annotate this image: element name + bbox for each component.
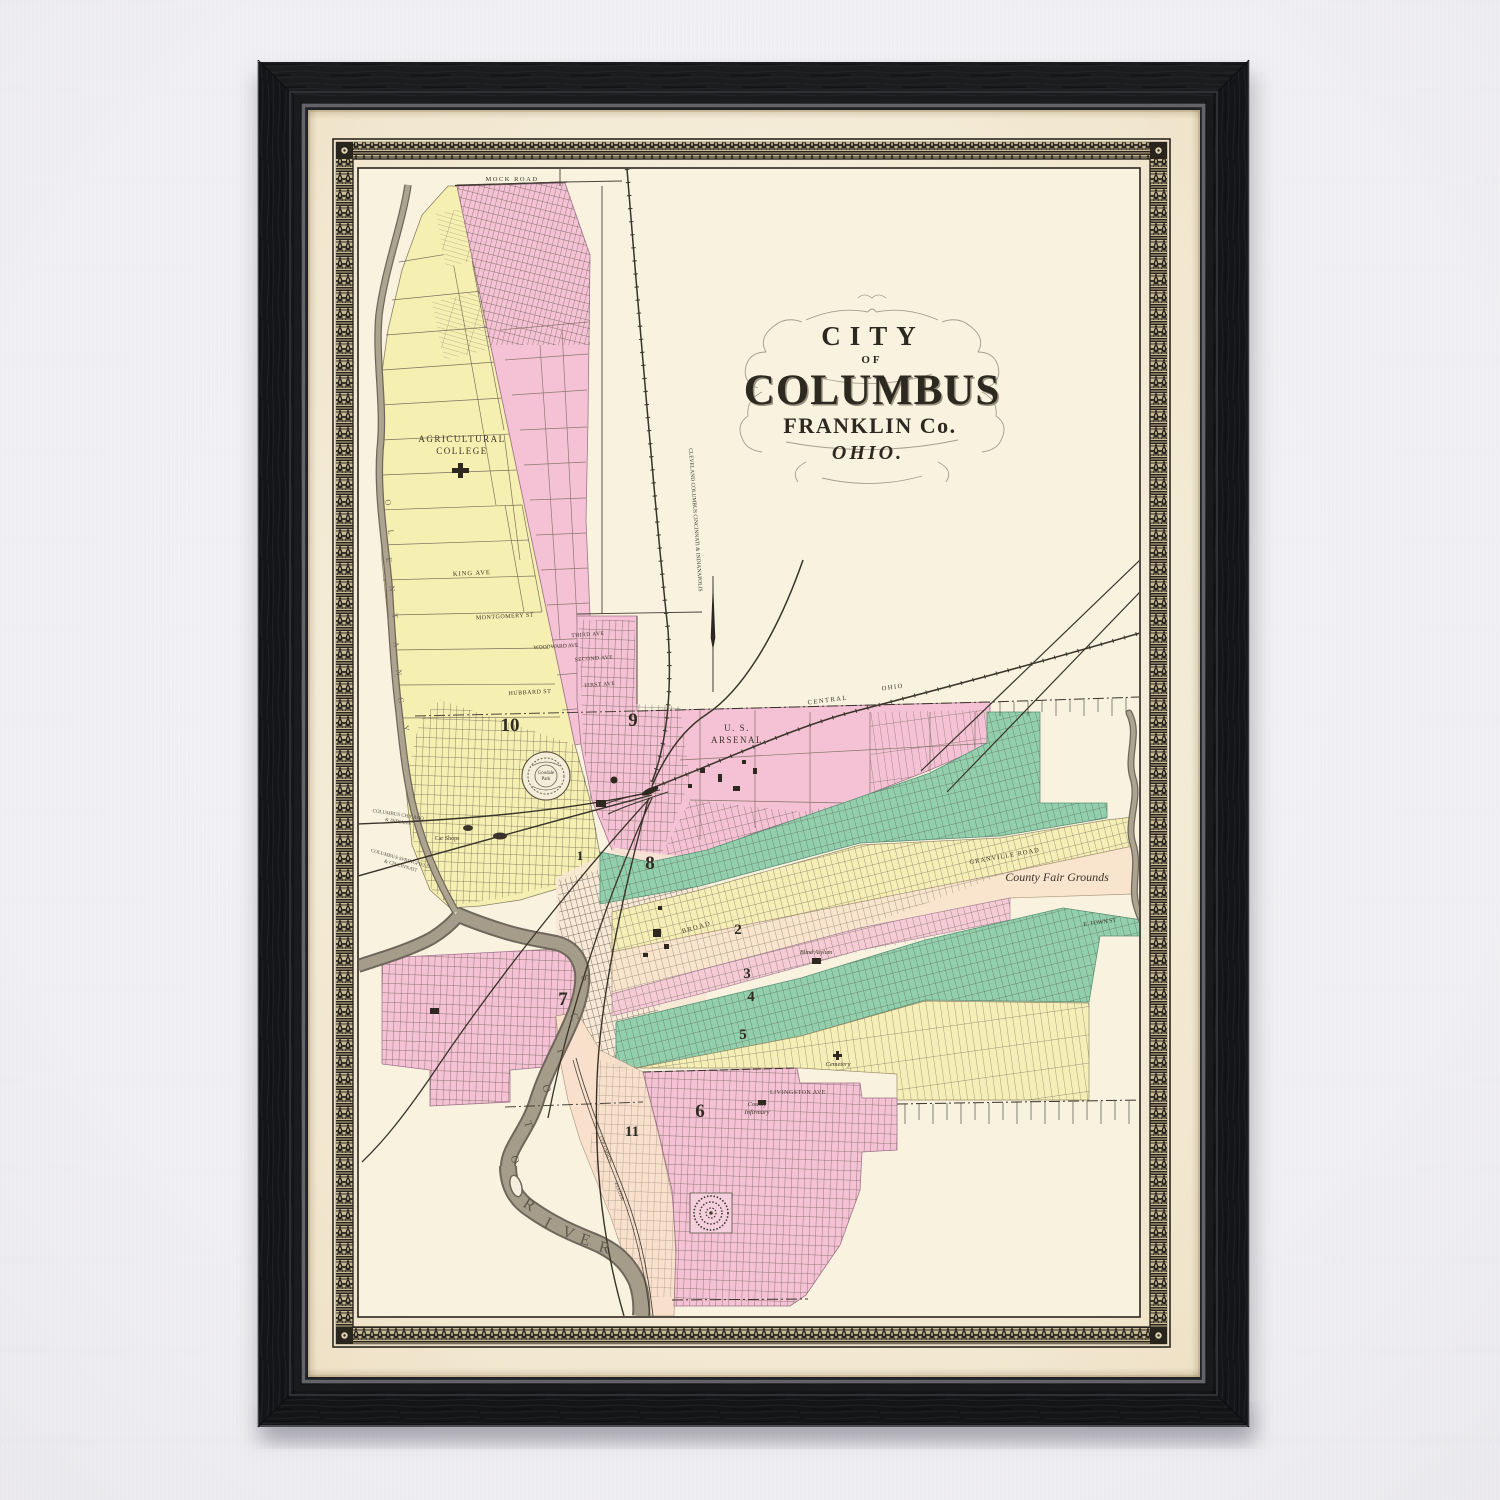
- svg-text:AGRICULTURAL: AGRICULTURAL: [418, 434, 505, 444]
- svg-text:Infirmary: Infirmary: [744, 1109, 770, 1116]
- svg-text:FRANKLIN Co.: FRANKLIN Co.: [783, 413, 956, 438]
- svg-text:8: 8: [645, 853, 655, 874]
- svg-text:4: 4: [747, 989, 755, 1005]
- svg-text:9: 9: [628, 710, 638, 731]
- svg-text:MOCK ROAD: MOCK ROAD: [485, 176, 538, 183]
- svg-text:County Fair Grounds: County Fair Grounds: [1005, 870, 1109, 884]
- svg-text:LIVINGSTON AVE: LIVINGSTON AVE: [770, 1090, 826, 1096]
- svg-text:County: County: [748, 1101, 767, 1108]
- svg-text:10: 10: [501, 715, 520, 736]
- svg-text:11: 11: [625, 1124, 639, 1140]
- svg-text:Cemetery: Cemetery: [826, 1061, 851, 1068]
- svg-text:5: 5: [739, 1027, 747, 1043]
- svg-text:COLLEGE: COLLEGE: [436, 446, 488, 456]
- svg-text:6: 6: [695, 1101, 705, 1122]
- svg-text:ARSENAL: ARSENAL: [711, 735, 763, 745]
- svg-text:7: 7: [558, 989, 568, 1010]
- svg-text:COLUMBUS: COLUMBUS: [744, 367, 1000, 414]
- svg-text:Goodale: Goodale: [538, 771, 554, 776]
- svg-text:1: 1: [577, 848, 584, 863]
- svg-text:CITY: CITY: [821, 321, 925, 351]
- svg-text:Car Shops: Car Shops: [435, 836, 461, 842]
- svg-text:U. S.: U. S.: [724, 723, 750, 733]
- svg-text:OF: OF: [861, 354, 882, 366]
- svg-text:2: 2: [734, 922, 742, 938]
- svg-text:Blind Asylum: Blind Asylum: [800, 950, 833, 956]
- svg-text:OHIO.: OHIO.: [832, 442, 904, 464]
- svg-text:Park: Park: [542, 777, 551, 782]
- svg-text:3: 3: [743, 966, 751, 982]
